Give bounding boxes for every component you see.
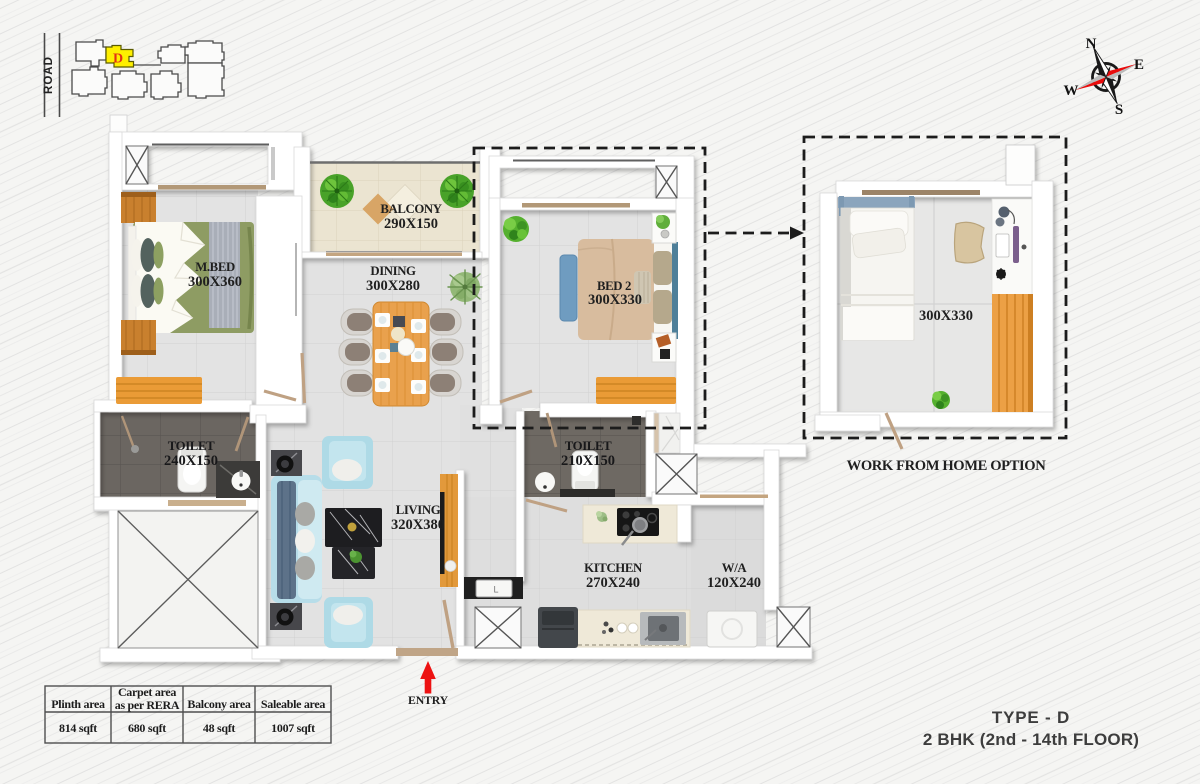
svg-text:290X150: 290X150	[384, 216, 438, 232]
svg-text:Carpet area: Carpet area	[118, 685, 176, 699]
svg-text:L: L	[493, 585, 498, 595]
svg-text:300X280: 300X280	[366, 278, 420, 294]
svg-text:DINING: DINING	[370, 264, 416, 278]
svg-text:120X240: 120X240	[707, 575, 761, 591]
svg-text:Plinth area: Plinth area	[51, 697, 105, 711]
svg-text:300X330: 300X330	[919, 308, 973, 324]
svg-text:300X360: 300X360	[188, 274, 242, 290]
svg-text:BALCONY: BALCONY	[380, 202, 441, 216]
svg-text:D: D	[113, 52, 123, 67]
svg-text:320X380: 320X380	[391, 517, 445, 533]
svg-text:M.BED: M.BED	[195, 260, 235, 274]
svg-text:210X150: 210X150	[561, 453, 615, 469]
svg-text:as per RERA: as per RERA	[115, 698, 180, 712]
svg-text:TOILET: TOILET	[168, 439, 215, 453]
svg-text:WORK FROM HOME OPTION: WORK FROM HOME OPTION	[847, 458, 1047, 474]
svg-text:LIVING: LIVING	[396, 503, 441, 517]
svg-text:Saleable area: Saleable area	[261, 697, 326, 711]
svg-text:2 BHK (2nd - 14th FLOOR): 2 BHK (2nd - 14th FLOOR)	[923, 730, 1139, 749]
svg-text:ROAD: ROAD	[43, 56, 55, 94]
svg-text:ENTRY: ENTRY	[408, 693, 449, 707]
svg-text:BED 2: BED 2	[597, 279, 631, 293]
svg-text:W: W	[1064, 83, 1079, 99]
svg-text:W/A: W/A	[722, 561, 748, 575]
svg-text:N: N	[1086, 36, 1097, 52]
svg-text:814 sqft: 814 sqft	[59, 721, 97, 735]
svg-text:240X150: 240X150	[164, 453, 218, 469]
svg-text:E: E	[1134, 57, 1144, 73]
svg-text:TOILET: TOILET	[565, 439, 612, 453]
svg-text:TYPE - D: TYPE - D	[992, 708, 1070, 727]
svg-text:KITCHEN: KITCHEN	[584, 561, 643, 575]
svg-text:300X330: 300X330	[588, 292, 642, 308]
svg-text:48 sqft: 48 sqft	[203, 721, 236, 735]
svg-text:1007 sqft: 1007 sqft	[271, 721, 315, 735]
svg-text:680 sqft: 680 sqft	[128, 721, 166, 735]
svg-text:Balcony area: Balcony area	[187, 697, 250, 711]
svg-text:S: S	[1115, 102, 1123, 118]
svg-text:270X240: 270X240	[586, 575, 640, 591]
